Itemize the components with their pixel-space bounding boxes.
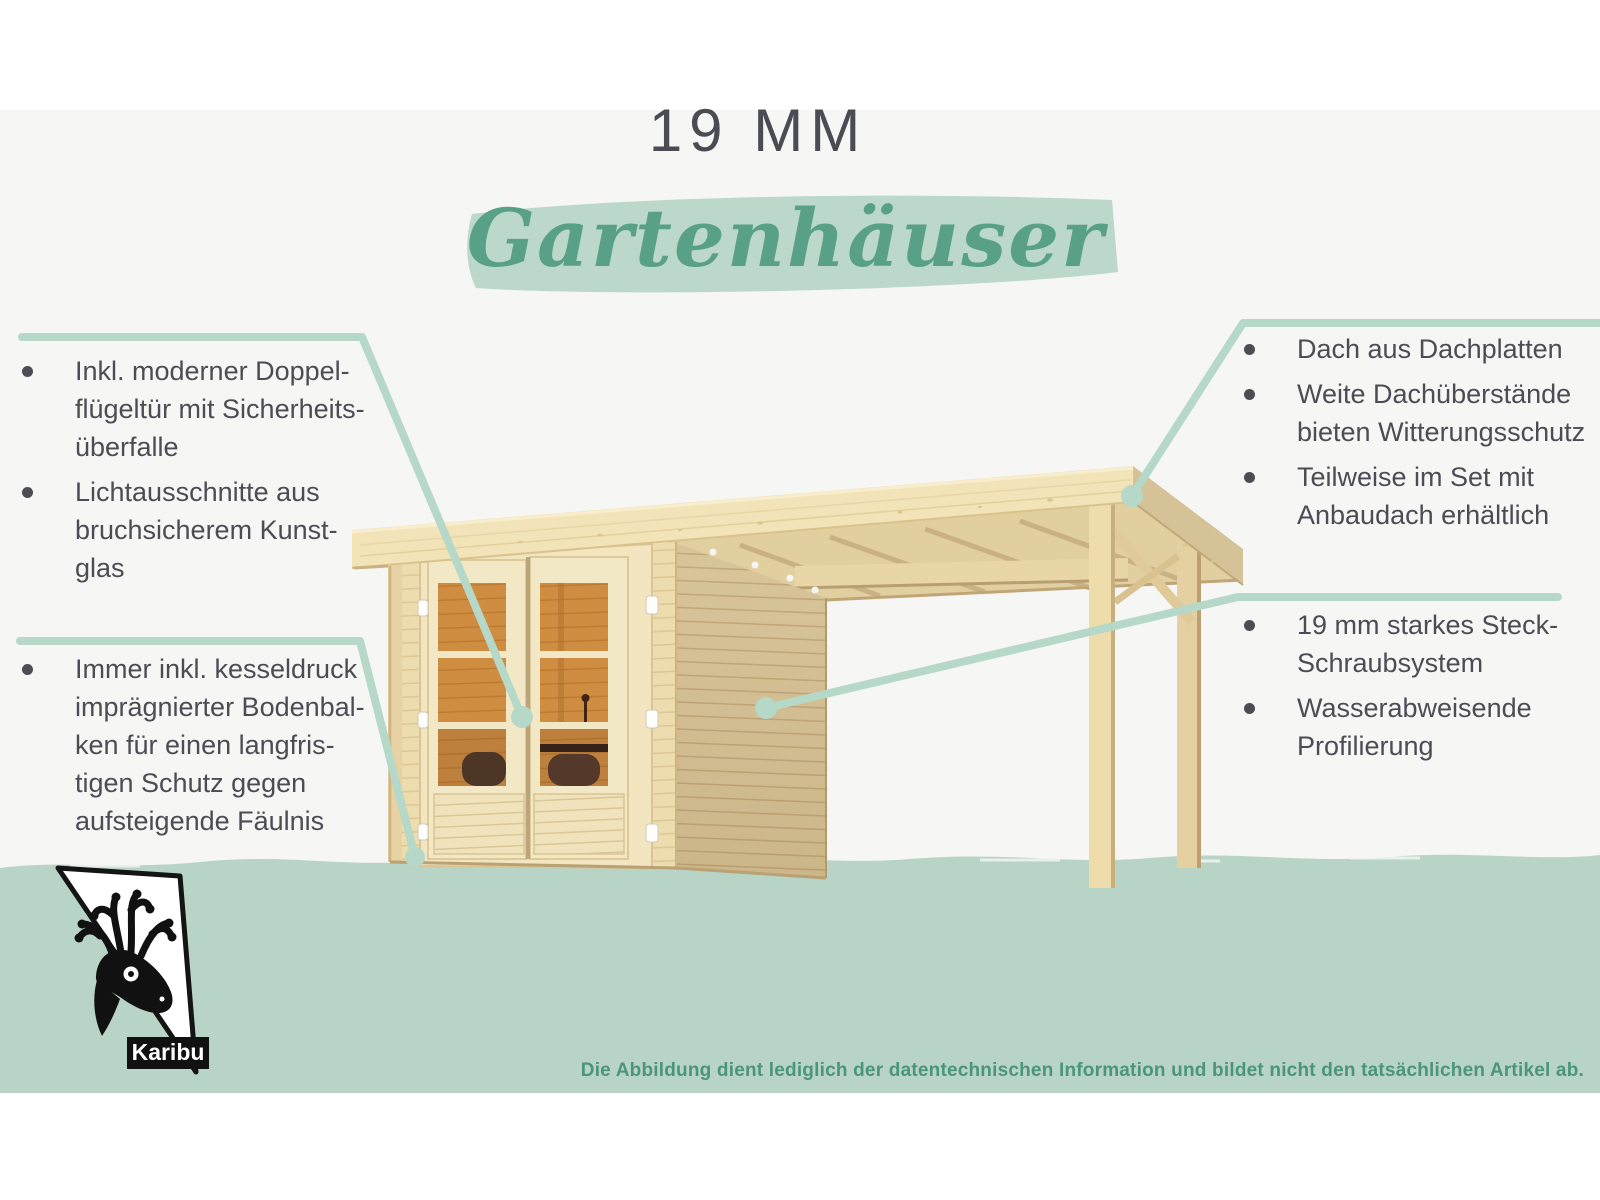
feature-text: Inkl. moderner Doppel- flügeltür mit Sic… (75, 352, 365, 466)
bullet-icon (22, 664, 33, 675)
page-title-category: Gartenhäuser (452, 176, 1120, 306)
bullet-icon (1244, 389, 1255, 400)
feature-text: Teilweise im Set mit Anbaudach erhältlic… (1297, 458, 1549, 534)
feature-item: 19 mm starkes Steck- Schraubsystem (1244, 606, 1558, 682)
feature-item: Immer inkl. kesseldruck imprägnierter Bo… (22, 650, 365, 840)
feature-item: Teilweise im Set mit Anbaudach erhältlic… (1244, 458, 1585, 534)
callout-dot-roof (1121, 485, 1143, 507)
feature-list-left-top: Inkl. moderner Doppel- flügeltür mit Sic… (22, 352, 365, 594)
bullet-icon (1244, 344, 1255, 355)
feature-text: 19 mm starkes Steck- Schraubsystem (1297, 606, 1558, 682)
bullet-icon (1244, 703, 1255, 714)
feature-list-right-bottom: 19 mm starkes Steck- Schraubsystem Wasse… (1244, 606, 1558, 772)
feature-text: Lichtausschnitte aus bruchsicherem Kunst… (75, 473, 338, 587)
feature-text: Weite Dachüberstände bieten Witterungssc… (1297, 375, 1585, 451)
logo-wordmark: Karibu (132, 1039, 205, 1065)
feature-item: Dach aus Dachplatten (1244, 330, 1585, 368)
feature-item: Wasserabweisende Profilierung (1244, 689, 1558, 765)
shed-door (418, 544, 658, 868)
category-title-text: Gartenhäuser (452, 176, 1120, 300)
bullet-icon (1244, 472, 1255, 483)
feature-text: Immer inkl. kesseldruck imprägnierter Bo… (75, 650, 365, 840)
feature-text: Dach aus Dachplatten (1297, 330, 1563, 368)
feature-list-left-bottom: Immer inkl. kesseldruck imprägnierter Bo… (22, 650, 365, 847)
bullet-icon (1244, 620, 1255, 631)
bullet-icon (22, 487, 33, 498)
feature-item: Inkl. moderner Doppel- flügeltür mit Sic… (22, 352, 365, 466)
callout-dot-door (511, 706, 533, 728)
ground-band (0, 855, 1600, 1093)
page-title-size: 19 MM (0, 100, 1558, 162)
callout-dot-foundation (405, 847, 425, 867)
disclaimer-text: Die Abbildung dient lediglich der datent… (581, 1060, 1584, 1082)
bullet-icon (22, 366, 33, 377)
shed-side-wall (668, 540, 826, 878)
callout-dot-wall (755, 697, 777, 719)
garden-shed (352, 466, 1243, 888)
feature-item: Lichtausschnitte aus bruchsicherem Kunst… (22, 473, 365, 587)
feature-text: Wasserabweisende Profilierung (1297, 689, 1532, 765)
feature-item: Weite Dachüberstände bieten Witterungssc… (1244, 375, 1585, 451)
feature-list-right-top: Dach aus Dachplatten Weite Dachüberständ… (1244, 330, 1585, 541)
